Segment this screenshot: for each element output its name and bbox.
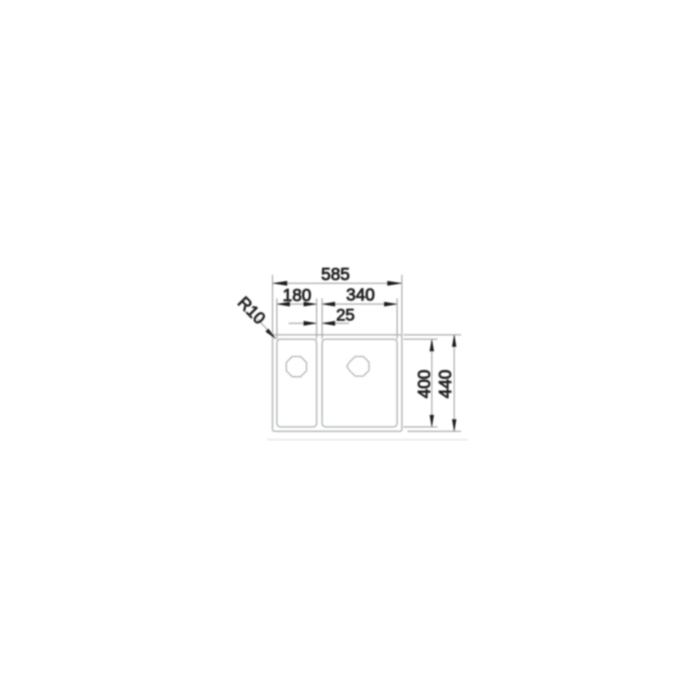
svg-text:180: 180 <box>283 285 312 305</box>
svg-text:400: 400 <box>414 370 434 399</box>
svg-text:440: 440 <box>435 370 455 399</box>
svg-text:340: 340 <box>346 284 375 304</box>
svg-text:585: 585 <box>321 264 350 284</box>
svg-text:25: 25 <box>336 305 355 324</box>
